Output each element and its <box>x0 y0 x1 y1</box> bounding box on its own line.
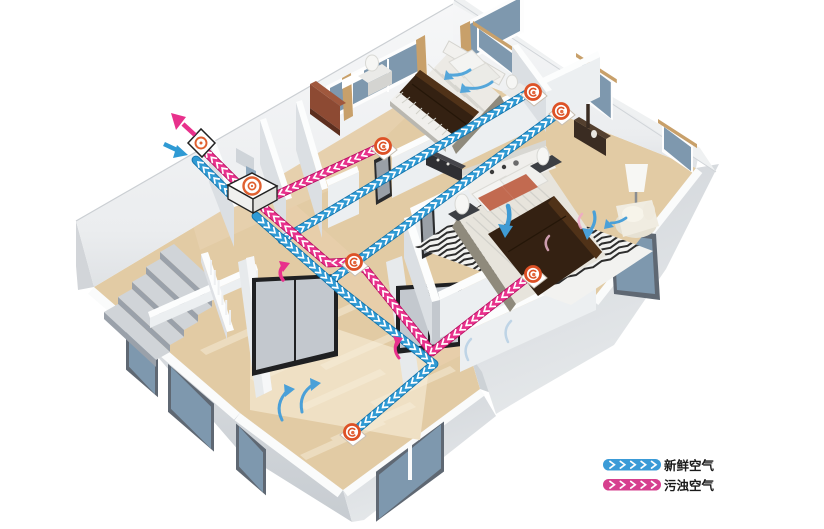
svg-text:污浊空气: 污浊空气 <box>664 478 715 493</box>
svg-text:新鲜空气: 新鲜空气 <box>664 458 715 473</box>
